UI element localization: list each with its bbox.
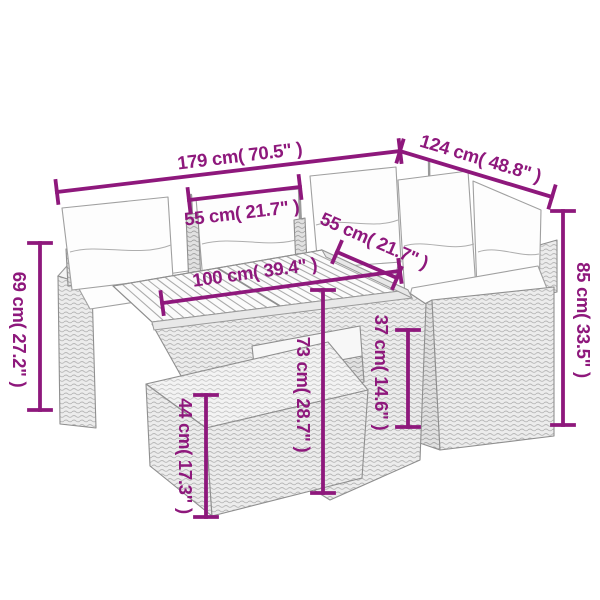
dim-overall-width-label: 179 cm( 70.5" ) <box>176 138 303 174</box>
diagram-canvas: 179 cm( 70.5" ) 124 cm( 48.8" ) 55 cm( 2… <box>0 0 600 600</box>
dim-tick <box>56 181 59 203</box>
dim-ottoman-height-label: 44 cm( 17.3" ) <box>175 398 196 514</box>
right-back-pillow-1 <box>398 171 476 297</box>
dim-back-height-label: 85 cm( 33.5" ) <box>573 262 594 378</box>
dim-armrest-height: 69 cm( 27.2" ) <box>9 243 51 410</box>
right-base-front-face <box>432 287 554 450</box>
dim-table-height-label: 73 cm( 28.7" ) <box>293 337 314 453</box>
dim-armrest-height-label: 69 cm( 27.2" ) <box>9 272 30 388</box>
dim-seat-height-label: 37 cm( 14.6" ) <box>371 315 392 431</box>
left-back-pillow-1 <box>62 197 173 290</box>
dimension-diagram: 179 cm( 70.5" ) 124 cm( 48.8" ) 55 cm( 2… <box>0 0 600 600</box>
dim-tick <box>299 176 302 198</box>
dim-back-height: 85 cm( 33.5" ) <box>552 211 594 425</box>
